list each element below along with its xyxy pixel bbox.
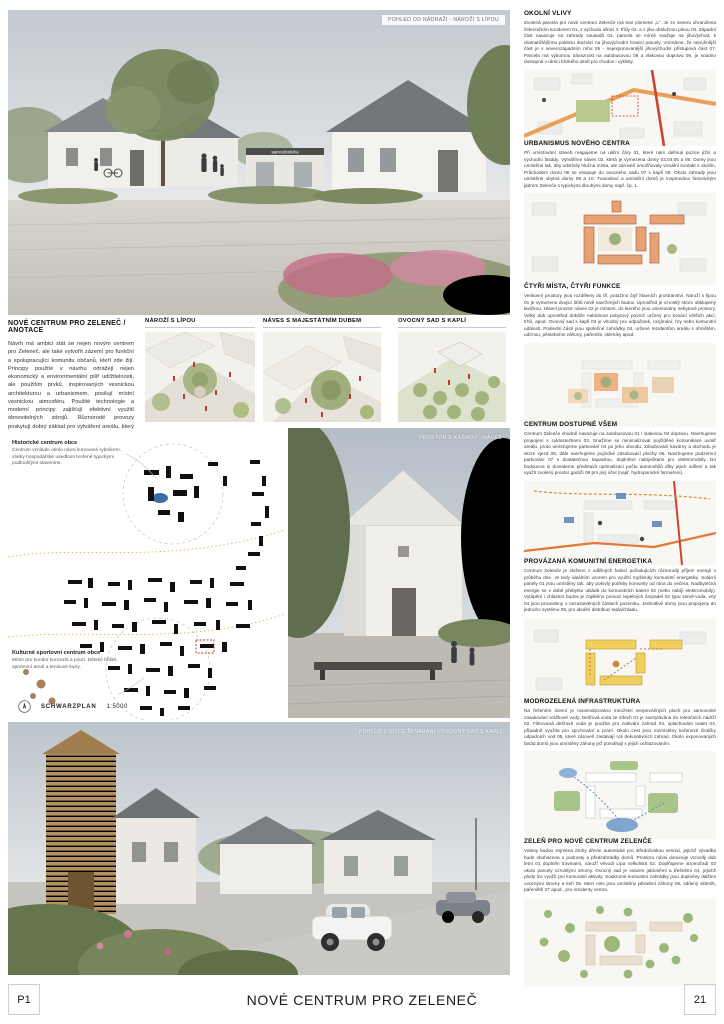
tree-icon [609,233,621,245]
tree-icon [192,372,208,388]
schwarzplan-label: SCHWARZPLAN [41,704,96,710]
map-zelen [524,898,716,986]
flower-bed [278,250,510,315]
hero-bottom-render: POHLED Z ULICE ŠKVARANI - OVOCNÝ SAD S K… [8,722,510,975]
section-title: OKOLNÍ VLIVY [524,10,716,17]
wooden-tower [42,730,120,914]
section-energetika: PROVÁZANÁ KOMUNITNÍ ENERGETIKA Centrum Z… [524,558,716,704]
map-modrozelena [524,751,716,839]
hero-top-render: samoobsluha [8,10,510,315]
diagram-sad-illustration [398,332,506,422]
battery-marker [613,661,620,668]
sheet-number-box: 21 [684,984,716,1015]
section-title: ČTYŘI MÍSTA, ČTYŘI FUNKCE [524,283,716,290]
label-body: Místo pro konání koncertů a poutí. Dětsk… [12,658,124,671]
map-okolni-vlivy [524,70,716,146]
annotation-heading: NOVÉ CENTRUM PRO ZELENEČ / ANOTACE [8,320,134,334]
shop-pavilion: samoobsluha [246,148,324,187]
board-title: NOVÉ CENTRUM PRO ZELENEČ [0,992,724,1008]
map-urbanismus [524,193,716,285]
tree-icon [152,393,170,411]
hero-top-illustration: samoobsluha [8,10,510,315]
sheet-number: 21 [694,994,706,1006]
hero-top-caption: POHLED OD NÁDRAŽÍ - NÁROŽÍ S LÍPOU [382,15,505,25]
hero-bottom-caption: POHLED Z ULICE ŠKVARANI - OVOCNÝ SAD S K… [359,729,502,735]
oak-tree-icon [321,380,341,400]
section-ctyri-mista: ČTYŘI MÍSTA, ČTYŘI FUNKCE Venkovní prost… [524,283,716,427]
retention-pond [559,768,577,778]
section-body: Voleny budou zejména druhy dřevin autent… [524,848,716,894]
map-ctyri-mista [524,343,716,427]
diagram-naves-illustration [263,332,381,422]
section-body: Na řešeném území je maximalizováno množs… [524,708,716,747]
section-title: PROVÁZANÁ KOMUNITNÍ ENERGETIKA [524,558,716,565]
section-body: Centrum Zelenče je složeno z odlišných f… [524,568,716,614]
schwarzplan-map [8,432,285,720]
diagram-title: OVOCNÝ SAD S KAPLÍ [398,318,506,328]
schwarzplan-footer: SCHWARZPLAN 1:5000 [18,700,128,713]
section-title: ZELEŇ PRO NOVÉ CENTRUM ZELENČE [524,838,716,845]
map-dostupne [524,481,716,565]
label-body: Centrum vznikalo okolo návsi lemované ry… [12,448,130,468]
section-zelen: ZELEŇ PRO NOVÉ CENTRUM ZELENČE Voleny bu… [524,838,716,986]
map-energetika [524,618,716,704]
tree-icon [574,392,582,400]
section-body: Při umísťování staveb reagujeme na uličn… [524,150,716,189]
tree-icon [233,402,249,418]
section-title: CENTRUM DOSTUPNÉ VŠEM [524,421,716,428]
label-title: Kulturně sportovní centrum obce [12,650,124,656]
tree-icon [667,244,677,254]
hero-bottom-illustration [8,722,510,975]
north-arrow-icon [18,700,31,713]
schwarzplan-scale: 1:5000 [106,704,127,710]
section-dostupne: CENTRUM DOSTUPNÉ VŠEM Centrum Zelenče vh… [524,421,716,565]
annotation-text: Návrh má ambici stát se nejen novým cent… [8,340,134,439]
section-body: Zvolená parcela pro nové centrum Zelenče… [524,20,716,66]
schwarzplan-label-cultural: Kulturně sportovní centrum obce Místo pr… [12,650,124,671]
competition-board: samoobsluha [0,0,724,1024]
diagram-card-sad: OVOCNÝ SAD S KAPLÍ [398,318,506,427]
tree-icon [601,377,612,388]
section-title: URBANISMUS NOVÉHO CENTRA [524,140,716,147]
diagram-title: NÁROŽÍ S LÍPOU [145,318,255,328]
schwarzplan-panel: Historické centrum obce Centrum vznikalo… [8,432,285,720]
diagram-narozi-illustration [145,332,255,422]
section-body: Centrum Zelenče vhodně navazuje na autob… [524,431,716,477]
section-body: Venkovní prostory jsou rozděleny do tří,… [524,293,716,339]
tree-icon [360,405,374,419]
garden-area [652,377,674,393]
pond [152,493,168,503]
green-area [576,100,610,122]
photo-naves-illustration [288,428,510,718]
photo-naves: PROSTOR S KAŠNOU - NÁVES [288,428,510,718]
label-title: Historické centrum obce [12,440,130,446]
diagram-card-narozi: NÁROŽÍ S LÍPOU [145,318,255,427]
tree-icon [275,398,291,414]
section-modrozelena: MODROZELENÁ INFRASTRUKTURA Na řešeném úz… [524,698,716,839]
section-title: MODROZELENÁ INFRASTRUKTURA [524,698,716,705]
photo-naves-caption: PROSTOR S KAŠNOU - NÁVES [419,435,502,441]
diagram-card-naves: NÁVES S MAJESTÁTNÍM DUBEM [263,318,381,427]
fountain [194,386,206,398]
retention-pond [606,818,638,832]
diagram-title: NÁVES S MAJESTÁTNÍM DUBEM [263,318,381,328]
annotation-block: NOVÉ CENTRUM PRO ZELENEČ / ANOTACE Návrh… [8,320,134,439]
tree-icon [629,390,638,399]
section-okolni-vlivy: OKOLNÍ VLIVY Zvolená parcela pro nové ce… [524,10,716,146]
section-urbanismus: URBANISMUS NOVÉHO CENTRA Při umísťování … [524,140,716,285]
schwarzplan-label-historic: Historické centrum obce Centrum vznikalo… [12,440,130,468]
shop-sign: samoobsluha [271,150,299,155]
